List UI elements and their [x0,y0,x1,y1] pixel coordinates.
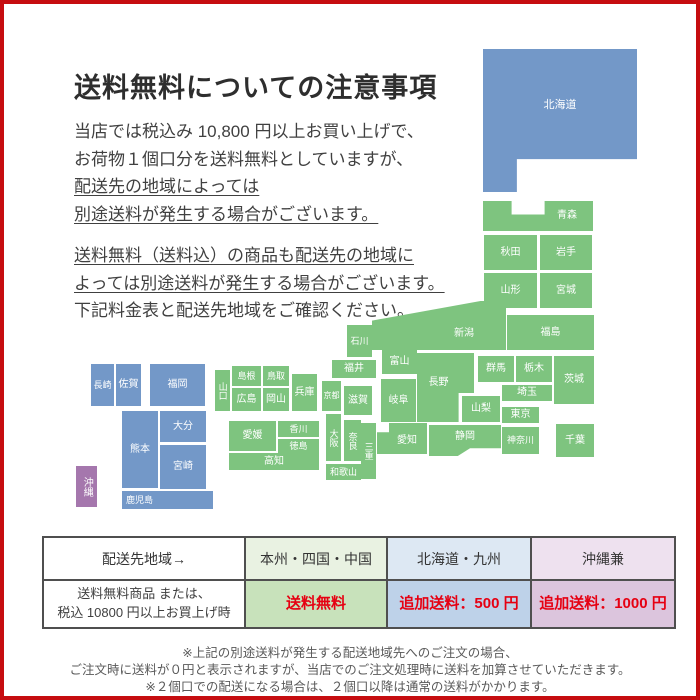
prefecture-label: 大分 [173,421,193,433]
prefecture-福井: 福井 [332,360,376,378]
text-line: 下記料金表と配送先地域をご確認ください。 [74,297,445,325]
prefecture-宮崎: 宮崎 [160,445,206,489]
prefecture-和歌山: 和歌山 [326,464,361,480]
prefecture-label: 岩手 [556,247,576,259]
prefecture-label: 神奈川 [507,435,534,445]
table-value-cell: 送料無料商品 または、税込 10800 円以上お買上げ時 [43,580,245,628]
table-value-cell: 送料無料 [245,580,387,628]
prefecture-長野: 長野 [417,353,474,422]
footnote-line: ご注文時に送料が０円と表示されますが、当店でのご注文処理時に送料を加算させていた… [4,662,696,679]
prefecture-label: 群馬 [486,363,506,375]
prefecture-秋田: 秋田 [484,235,537,270]
table-value-cell: 追加送料：500 円 [387,580,531,628]
prefecture-label: 新潟 [454,328,474,340]
prefecture-大分: 大分 [160,411,206,442]
prefecture-label: 香川 [289,424,307,434]
prefecture-label: 茨城 [564,374,584,386]
footnote-line: ※上記の別途送料が発生する配送地域先へのご注文の場合、 [4,645,696,662]
prefecture-label: 岐阜 [389,395,409,407]
prefecture-label: 栃木 [524,363,544,375]
prefecture-label: 愛媛 [243,430,263,442]
prefecture-label: 沖縄 [81,477,93,497]
prefecture-label: 山梨 [471,403,491,415]
prefecture-label: 大阪 [328,429,338,447]
prefecture-label: 高知 [264,456,284,468]
prefecture-label: 北海道 [544,99,577,112]
prefecture-岐阜: 岐阜 [381,379,416,422]
prefecture-京都: 京都 [322,381,341,411]
prefecture-label: 兵庫 [295,387,315,399]
prefecture-label: 滋賀 [348,395,368,407]
prefecture-label: 山口 [217,382,227,400]
prefecture-山形: 山形 [484,273,537,308]
prefecture-宮城: 宮城 [540,273,592,308]
prefecture-熊本: 熊本 [122,411,158,488]
prefecture-label: 静岡 [455,431,475,443]
prefecture-富山: 富山 [382,349,417,374]
page-title: 送料無料についての注意事項 [74,66,437,105]
prefecture-label: 三重 [363,442,373,460]
prefecture-label: 埼玉 [517,387,537,399]
prefecture-茨城: 茨城 [554,356,594,404]
table-header-cell: 沖縄兼 [531,537,675,580]
prefecture-埼玉: 埼玉 [502,385,552,401]
prefecture-label: 鳥取 [267,371,285,381]
prefecture-岩手: 岩手 [540,235,592,270]
prefecture-label: 広島 [237,394,257,406]
text-line: 送料無料（送料込）の商品も配送先の地域に [74,242,445,270]
table-header-cell: 本州・四国・中国 [245,537,387,580]
prefecture-愛知: 愛知 [377,423,427,454]
prefecture-label: 岡山 [266,394,286,406]
shipping-notice-page: 送料無料についての注意事項 当店では税込み 10,800 円以上お買い上げで、お… [0,0,700,700]
prefecture-label: 山形 [501,285,521,297]
text-line: よっては別途送料が発生する場合がございます。 [74,270,445,298]
prefecture-広島: 広島 [232,388,261,411]
surcharge-paragraph: 送料無料（送料込）の商品も配送先の地域によっては別途送料が発生する場合がございま… [74,242,445,325]
prefecture-label: 福井 [344,363,364,375]
prefecture-label: 鹿児島 [126,495,153,505]
prefecture-label: 福島 [541,327,561,339]
prefecture-福島: 福島 [507,315,594,350]
text-line: 当店では税込み 10,800 円以上お買い上げで、 [74,118,424,146]
prefecture-鹿児島: 鹿児島 [122,491,213,509]
table-value-cell: 追加送料：1000 円 [531,580,675,628]
text-line: 配送先の地域によっては [74,173,424,201]
prefecture-滋賀: 滋賀 [344,386,372,415]
prefecture-香川: 香川 [278,421,319,437]
prefecture-佐賀: 佐賀 [116,364,141,406]
prefecture-山口: 山口 [215,370,230,411]
prefecture-label: 奈良 [347,432,357,450]
prefecture-神奈川: 神奈川 [502,427,539,454]
prefecture-label: 秋田 [501,247,521,259]
prefecture-東京: 東京 [502,407,539,423]
prefecture-label: 佐賀 [119,379,139,391]
prefecture-label: 富山 [390,356,410,368]
prefecture-栃木: 栃木 [516,356,552,382]
prefecture-徳島: 徳島 [278,439,319,453]
prefecture-愛媛: 愛媛 [229,421,276,451]
prefecture-label: 熊本 [130,444,150,456]
prefecture-奈良: 奈良 [344,420,361,461]
prefecture-label: 愛知 [397,435,417,447]
prefecture-福岡: 福岡 [150,364,205,406]
prefecture-label: 長崎 [93,380,111,390]
prefecture-label: 和歌山 [330,467,357,477]
prefecture-鳥取: 鳥取 [263,366,289,386]
prefecture-高知: 高知 [229,453,319,470]
prefecture-label: 福岡 [168,379,188,391]
prefecture-大阪: 大阪 [326,414,341,461]
prefecture-label: 石川 [350,336,368,346]
prefecture-label: 島根 [237,371,255,381]
prefecture-青森: 青森 [483,201,593,231]
prefecture-静岡: 静岡 [429,425,501,456]
footnotes: ※上記の別途送料が発生する配送地域先へのご注文の場合、ご注文時に送料が０円と表示… [4,645,696,697]
footnote-line: ※２個口での配送になる場合は、２個口以降は通常の送料がかかります。 [4,679,696,696]
prefecture-label: 徳島 [289,441,307,451]
text-line: お荷物１個口分を送料無料としていますが、 [74,146,424,174]
prefecture-北海道: 北海道 [483,49,637,192]
prefecture-山梨: 山梨 [462,396,500,422]
prefecture-群馬: 群馬 [478,356,514,382]
prefecture-label: 宮崎 [173,461,193,473]
prefecture-label: 宮城 [556,285,576,297]
intro-paragraph: 当店では税込み 10,800 円以上お買い上げで、お荷物１個口分を送料無料として… [74,118,424,228]
prefecture-label: 京都 [324,391,340,400]
prefecture-label: 千葉 [565,435,585,447]
prefecture-石川: 石川 [347,325,372,357]
prefecture-兵庫: 兵庫 [292,374,317,411]
prefecture-沖縄: 沖縄 [76,466,97,507]
shipping-fee-table: 配送先地域→本州・四国・中国北海道・九州沖縄兼送料無料商品 または、税込 108… [42,536,676,629]
text-line: 別途送料が発生する場合がございます。 [74,201,424,229]
table-header-cell: 配送先地域→ [43,537,245,580]
prefecture-島根: 島根 [232,366,261,386]
prefecture-千葉: 千葉 [556,424,594,457]
prefecture-三重: 三重 [361,423,376,479]
prefecture-岡山: 岡山 [263,388,289,411]
prefecture-label: 長野 [429,377,449,389]
prefecture-長崎: 長崎 [91,364,114,406]
prefecture-label: 青森 [557,210,577,222]
prefecture-label: 東京 [511,409,531,421]
table-header-cell: 北海道・九州 [387,537,531,580]
